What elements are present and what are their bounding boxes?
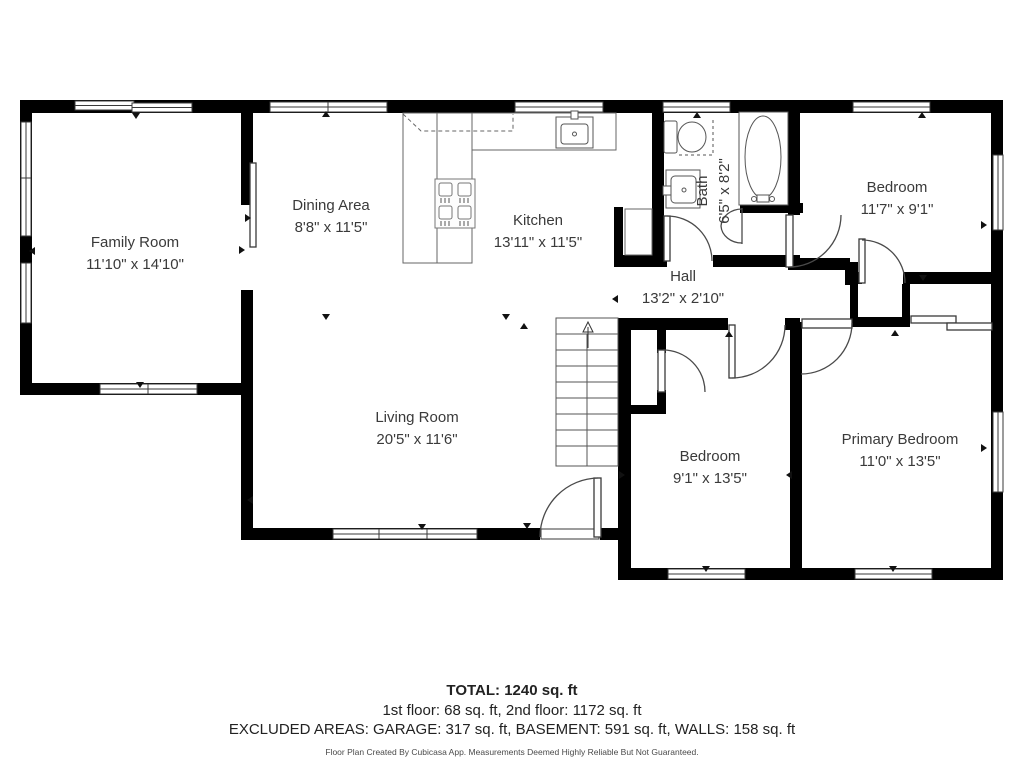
room-dimensions: 11'10" x 14'10": [55, 254, 215, 276]
room-name: Dining Area: [261, 195, 401, 217]
excluded-areas: EXCLUDED AREAS: GARAGE: 317 sq. ft, BASE…: [0, 721, 1024, 738]
room-name: Family Room: [55, 232, 215, 254]
bathtub: [739, 112, 788, 205]
room-name: Kitchen: [468, 210, 608, 232]
room-dimensions: 6'5" x 8'2": [714, 136, 736, 246]
room-dimensions: 9'1" x 13'5": [630, 468, 790, 490]
room-label-bedroom-top: Bedroom 11'7" x 9'1": [817, 177, 977, 221]
disclaimer-text: Floor Plan Created By Cubicasa App. Meas…: [0, 747, 1024, 757]
room-dimensions: 11'0" x 13'5": [800, 451, 1000, 473]
room-name: Bedroom: [817, 177, 977, 199]
room-label-hall: Hall 13'2" x 2'10": [613, 266, 753, 310]
room-name: Bedroom: [630, 446, 790, 468]
room-dimensions: 13'11" x 11'5": [468, 232, 608, 254]
room-label-primary-bedroom: Primary Bedroom 11'0" x 13'5": [800, 429, 1000, 473]
room-label-dining-area: Dining Area 8'8" x 11'5": [261, 195, 401, 239]
room-label-kitchen: Kitchen 13'11" x 11'5": [468, 210, 608, 254]
kitchen-sink: [556, 111, 593, 148]
walls-layer: [20, 100, 1003, 580]
summary: TOTAL: 1240 sq. ft 1st floor: 68 sq. ft,…: [0, 682, 1024, 757]
room-name: Living Room: [337, 407, 497, 429]
total-area: TOTAL: 1240 sq. ft: [0, 682, 1024, 699]
room-dimensions: 20'5" x 11'6": [337, 429, 497, 451]
room-name: Hall: [613, 266, 753, 288]
floor-areas: 1st floor: 68 sq. ft, 2nd floor: 1172 sq…: [0, 702, 1024, 719]
windows-layer: [21, 101, 1003, 579]
room-dimensions: 13'2" x 2'10": [613, 288, 753, 310]
room-label-family-room: Family Room 11'10" x 14'10": [55, 232, 215, 276]
staircase: [556, 318, 618, 466]
room-label-bath: Bath 6'5" x 8'2": [692, 136, 734, 246]
floor-plan-canvas: Family Room 11'10" x 14'10" Dining Area …: [0, 0, 1024, 768]
room-name: Primary Bedroom: [800, 429, 1000, 451]
room-name: Bath: [692, 136, 714, 246]
room-label-living-room: Living Room 20'5" x 11'6": [337, 407, 497, 451]
room-dimensions: 11'7" x 9'1": [817, 199, 977, 221]
floor-plan-drawing: [0, 0, 1024, 768]
room-label-bedroom-bottom: Bedroom 9'1" x 13'5": [630, 446, 790, 490]
room-dimensions: 8'8" x 11'5": [261, 217, 401, 239]
